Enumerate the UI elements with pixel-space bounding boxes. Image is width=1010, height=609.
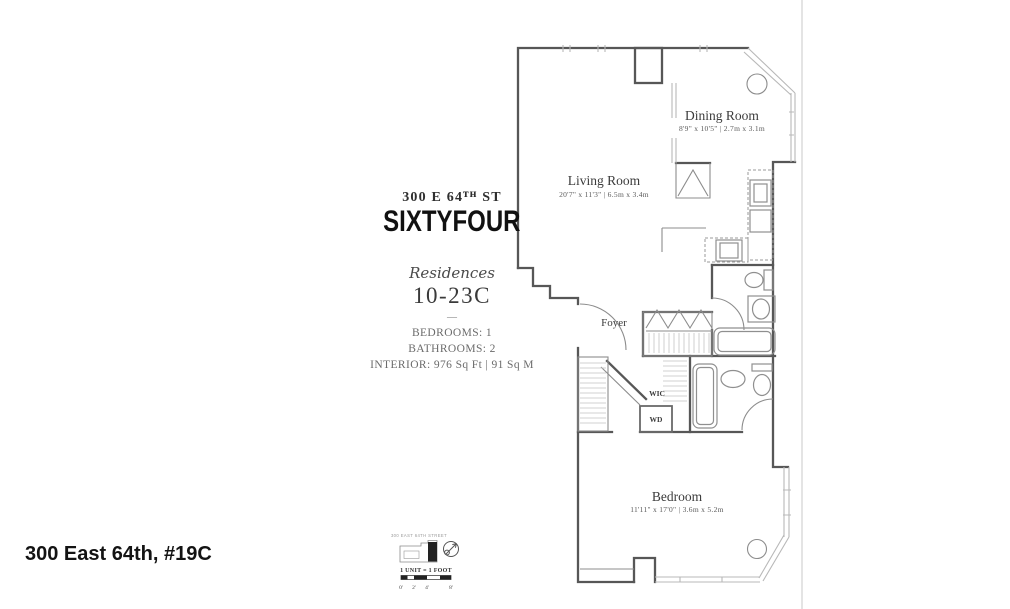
key-plan: 300 EAST 64TH STREET 1 UNIT = 1 FOOT 0' … [391,533,459,591]
bedrooms-line: BEDROOMS: 1 [330,327,574,339]
dining-nook [676,163,710,198]
bathroom-1-fixtures [714,270,775,355]
key-plan-unit-highlight [428,542,437,562]
dining-table-icon [747,74,767,94]
bedroom-dims: 11'11" x 17'0" | 3.6m x 5.2m [630,505,724,514]
listing-info-panel: 300 E 64ᵀᴴ ST SIXTYFOUR Residences 10-23… [330,190,574,371]
foyer-closet-outline [643,312,712,356]
scale-tick-2: 2' [412,585,416,591]
floor-plan-page: Living Room 20'7" x 11'3" | 6.5m x 3.4m … [0,0,1010,609]
scale-tick-8: 8' [449,585,453,591]
bathrooms-line: BATHROOMS: 2 [330,343,574,355]
interior-line: INTERIOR: 976 Sq Ft | 91 Sq M [330,359,574,371]
residences-label: Residences [330,264,574,282]
sink-2-icon [721,371,745,388]
building-address: 300 E 64ᵀᴴ ST [330,190,574,206]
key-plan-street-label: 300 EAST 64TH STREET [391,533,447,538]
living-room-label: Living Room [568,173,641,188]
wic-label: WIC [649,389,665,398]
bedroom-label: Bedroom [652,489,703,504]
bedroom-table-icon [748,540,767,559]
stove-icon [750,210,771,232]
dining-room-dims: 8'9" x 10'5" | 2.7m x 3.1m [679,124,765,133]
kitchen-counters [662,170,773,262]
scale-tick-4: 4' [425,585,429,591]
wd-label: WD [650,415,664,424]
dining-room-label: Dining Room [685,108,759,123]
scale-bar [401,576,451,580]
toilet-2-icon [752,364,772,371]
sink-icon [753,299,770,319]
building-name-text: SIXTYFOUR [383,207,520,237]
building-name: SIXTYFOUR [330,207,574,237]
bathroom-2-fixtures [693,364,772,428]
toilet-icon [764,270,773,290]
column [635,48,662,83]
scale-label: 1 UNIT = 1 FOOT [400,568,452,574]
scale-tick-0: 0' [399,585,403,591]
compass-icon [444,542,459,557]
listing-address-label: 300 East 64th, #19C [25,543,212,566]
divider-dash: — [330,313,574,323]
unit-range: 10-23C [330,283,574,309]
foyer-label: Foyer [601,317,627,329]
